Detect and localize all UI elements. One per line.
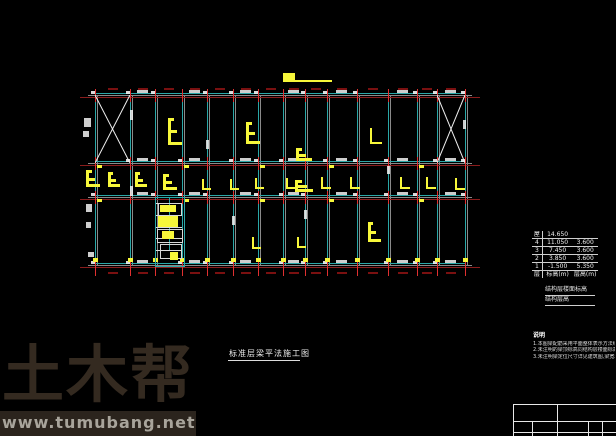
rebar-step-annotation [163,174,169,177]
beam-tag-mark [97,199,102,202]
beam-tag-mark [303,258,308,262]
table-footer-row: 层号 标高(m) 层高(m) [532,271,598,278]
column-tick [182,157,183,170]
floor-cell: 2 [532,255,543,262]
rebar-step-annotation [368,239,381,242]
dimension-text-mark [311,272,321,274]
dimension-text-mark [164,272,174,274]
rebar-step-annotation [108,172,113,175]
rebar-step-annotation [163,181,172,184]
height-cell [572,231,598,238]
column-tick [327,157,328,170]
beam-text-mark [189,90,200,93]
stair-rebar-mark [160,205,176,212]
beam-line-vertical [419,95,420,265]
rebar-step-annotation [86,184,100,187]
beam-tag-mark [386,258,391,262]
beam-tag-mark [231,258,236,262]
column-tick [417,157,418,170]
beam-text-mark [336,192,347,195]
beam-tag-mark [419,199,424,202]
beam-text-mark [288,260,299,263]
rebar-step-annotation [295,180,302,183]
column-label-mark [254,159,258,162]
beam-text-mark [240,158,251,161]
stair-rebar-mark [170,252,178,260]
text-mark [130,110,133,120]
column-label-mark [384,159,388,162]
beam-line-vertical [132,95,133,265]
beam-text-mark [240,260,251,263]
text-mark [232,216,235,225]
floor-cell: 层号 [532,271,543,278]
stair-flight-line [156,227,182,228]
column-tick [207,157,208,170]
column-label-mark [203,91,207,94]
rebar-step-annotation [135,172,140,175]
beam-text-mark [288,192,299,195]
axis-line [80,267,480,268]
rebar-step-annotation [168,142,182,145]
beam-text-mark [189,260,200,263]
drawing-title-underline [228,360,300,361]
beam-text-mark [189,192,200,195]
column-tick [283,89,284,102]
elevation-cell: 标高(m) [543,271,573,278]
text-mark [206,140,209,149]
floor-cell: 4 [532,239,543,246]
text-mark [84,118,91,127]
beam-tag-mark [463,258,468,262]
beam-line-vertical [390,95,391,265]
beam-text-mark [445,260,456,263]
dimension-text-mark [398,272,408,274]
elevation-cell: 7.450 [543,247,573,254]
dimension-text-mark [337,272,347,274]
dimension-text-mark [398,88,408,90]
column-label-mark [384,193,388,196]
elevation-cell: -1.500 [543,263,573,270]
column-tick [233,191,234,204]
beam-line-vertical [417,95,418,265]
column-tick [95,191,96,204]
text-mark [387,166,390,174]
cad-drawing-screen: 标准层梁平法施工图 屋面 14.650 4 11.050 3.600 3 7.4… [0,0,616,436]
column-tick [417,191,418,204]
dimension-text-mark [108,88,118,90]
beam-text-mark [397,158,408,161]
floor-elevation-table: 屋面 14.650 4 11.050 3.600 3 7.450 3.600 2… [532,231,598,278]
height-cell: 5.350 [572,263,598,270]
rebar-step-annotation [368,231,376,234]
beam-text-mark [137,192,148,195]
column-tick [357,157,358,170]
floor-cell: 3 [532,247,543,254]
beam-tag-mark [415,258,420,262]
column-label-mark [413,193,417,196]
dimension-text-mark [311,88,321,90]
rebar-step-annotation [295,189,313,192]
text-mark [304,210,307,219]
elevation-cell: 3.850 [543,255,573,262]
rebar-step-annotation [135,184,147,187]
column-tick [388,89,389,102]
rebar-step-annotation [246,132,255,135]
dimension-text-mark [422,272,432,274]
text-mark [463,120,466,129]
dimension-text-mark [368,272,378,274]
beam-tag-mark [97,165,102,168]
beam-text-mark [240,192,251,195]
stair-rebar-mark [158,216,178,227]
rebar-step-annotation [246,122,252,125]
column-tick [305,89,306,102]
column-tick [283,191,284,204]
rebar-step-annotation [368,222,373,225]
column-tick [465,89,466,102]
height-cell: 3.600 [572,239,598,246]
table-caption: 结构层楼面标高 结构层高 [545,286,595,306]
column-label-mark [229,91,233,94]
rebar-step-annotation [168,130,177,133]
text-mark [86,204,92,212]
beam-line-horizontal [88,197,472,198]
column-label-mark [151,159,155,162]
note-line: 2.未注明的梁顶标高同结构层楼面标高。 [533,347,615,354]
caption-line: 结构层楼面标高 [545,286,595,296]
watermark-logo: 土木帮 [2,344,194,406]
rebar-step-annotation [246,141,260,144]
caption-line: 结构层高 [545,296,595,306]
dimension-text-mark [190,88,200,90]
drawing-title: 标准层梁平法施工图 [229,348,310,359]
rebar-l-annotation [286,178,295,189]
table-row: 3 7.450 3.600 [532,247,598,255]
beam-tag-mark [260,165,265,168]
column-tick [327,89,328,102]
column-label-mark [433,91,437,94]
column-label-mark [461,193,465,196]
column-label-mark [301,91,305,94]
floor-cell: 1 [532,263,543,270]
dimension-text-mark [241,88,251,90]
notes-block: 说明 1.本图梁配筋采用平面整体表示方法绘制,详见图集16G101-1。 2.未… [533,333,615,360]
beam-line-vertical [130,95,131,265]
column-tick [207,89,208,102]
rebar-l-annotation [230,179,239,190]
column-tick [258,89,259,102]
dimension-text-mark [138,272,148,274]
column-label-mark [353,193,357,196]
beam-tag-mark [260,199,265,202]
column-tick [437,191,438,204]
beam-tag-mark [281,258,286,262]
dimension-text-mark [446,88,456,90]
rebar-step-annotation [135,179,143,182]
column-label-mark [301,193,305,196]
column-label-mark [353,159,357,162]
rebar-annotation [290,80,332,82]
text-mark [83,131,89,137]
table-row: 2 3.850 3.600 [532,255,598,263]
column-label-mark [126,91,130,94]
column-tick [155,157,156,170]
beam-text-mark [445,192,456,195]
rebar-l-annotation [321,177,331,189]
beam-line-vertical [388,95,389,265]
column-label-mark [229,159,233,162]
beam-text-mark [336,158,347,161]
x-brace [95,95,130,163]
beam-tag-mark [419,165,424,168]
dimension-text-mark [215,88,225,90]
beam-text-mark [288,90,299,93]
beam-tag-mark [325,258,330,262]
column-tick [258,191,259,204]
text-mark [130,186,133,196]
elevation-cell: 11.050 [543,239,573,246]
elevation-cell: 14.650 [543,231,573,238]
dimension-text-mark [164,88,174,90]
column-label-mark [323,91,327,94]
text-mark [86,222,91,228]
rebar-step-annotation [108,184,120,187]
note-line: 3.未注明梁定位尺寸详见建筑图,梁宽均为300mm。 [533,354,615,361]
floor-cell: 屋面 [532,231,543,238]
beam-text-mark [137,260,148,263]
column-label-mark [323,159,327,162]
rebar-step-annotation [295,185,307,188]
rebar-l-annotation [252,237,261,249]
rebar-step-annotation [296,154,306,157]
column-label-mark [461,91,465,94]
column-tick [465,191,466,204]
dimension-text-mark [266,88,276,90]
column-label-mark [151,193,155,196]
column-tick [357,191,358,204]
rebar-step-annotation [163,187,177,190]
rebar-step-annotation [296,158,312,161]
column-label-mark [151,91,155,94]
dimension-text-mark [215,272,225,274]
dimension-text-mark [289,272,299,274]
rebar-step-annotation [168,118,174,121]
column-tick [327,191,328,204]
rebar-step-annotation [86,170,92,173]
beam-tag-mark [329,165,334,168]
beam-tag-mark [355,258,360,262]
dimension-text-mark [368,88,378,90]
beam-line-horizontal [88,95,472,96]
column-label-mark [254,193,258,196]
height-cell: 层高(m) [572,271,598,278]
dimension-text-mark [337,88,347,90]
beam-tag-mark [435,258,440,262]
column-label-mark [178,159,182,162]
column-tick [283,157,284,170]
column-label-mark [254,91,258,94]
column-tick [258,157,259,170]
rebar-l-annotation [455,178,465,190]
height-cell: 3.600 [572,255,598,262]
dimension-text-mark [289,88,299,90]
x-brace [437,95,465,163]
beam-tag-mark [93,258,98,262]
rebar-l-annotation [350,177,360,189]
dimension-text-mark [422,88,432,90]
column-label-mark [279,193,283,196]
column-tick [357,89,358,102]
beam-text-mark [336,260,347,263]
beam-text-mark [336,90,347,93]
beam-line-vertical [307,95,308,265]
column-tick [182,89,183,102]
column-label-mark [413,91,417,94]
beam-text-mark [397,192,408,195]
beam-line-horizontal [88,265,472,266]
column-label-mark [91,193,95,196]
beam-tag-mark [256,258,261,262]
beam-text-mark [240,90,251,93]
beam-text-mark [137,158,148,161]
beam-line-vertical [283,95,284,265]
notes-heading: 说明 [533,333,615,340]
column-label-mark [91,91,95,94]
beam-text-mark [137,90,148,93]
beam-tag-mark [128,258,133,262]
beam-tag-mark [205,258,210,262]
height-cell: 3.600 [572,247,598,254]
column-label-mark [353,91,357,94]
rebar-l-annotation [426,177,436,189]
rebar-l-annotation [297,237,306,248]
column-tick [130,89,131,102]
dimension-text-mark [241,272,251,274]
rebar-step-annotation [296,148,302,151]
column-label-mark [203,193,207,196]
beam-tag-mark [184,165,189,168]
table-row: 1 -1.500 5.350 [532,263,598,271]
column-tick [233,157,234,170]
beam-line-vertical [467,95,468,265]
beam-tag-mark [329,199,334,202]
beam-text-mark [397,260,408,263]
beam-line-horizontal [88,163,472,164]
beam-text-mark [189,158,200,161]
rebar-step-annotation [86,178,95,181]
column-tick [388,191,389,204]
rebar-l-annotation [370,128,382,144]
column-tick [305,191,306,204]
table-row: 4 11.050 3.600 [532,239,598,247]
stair-rebar-mark [162,231,174,239]
rebar-l-annotation [400,177,410,189]
dimension-text-mark [138,88,148,90]
watermark-url: www.tumubang.net [2,413,196,432]
rebar-l-annotation [202,179,211,190]
axis-line [80,97,480,98]
dimension-text-mark [190,272,200,274]
column-tick [130,157,131,170]
dimension-text-mark [446,272,456,274]
column-tick [207,191,208,204]
column-tick [155,89,156,102]
dimension-text-mark [108,272,118,274]
table-row: 屋面 14.650 [532,231,598,239]
rebar-step-annotation [108,179,116,182]
column-tick [465,157,466,170]
column-tick [417,89,418,102]
column-label-mark [178,193,182,196]
beam-text-mark [445,90,456,93]
column-label-mark [279,159,283,162]
rebar-l-annotation [255,178,264,189]
text-mark [88,252,94,257]
beam-text-mark [397,90,408,93]
dimension-text-mark [266,272,276,274]
column-tick [233,89,234,102]
